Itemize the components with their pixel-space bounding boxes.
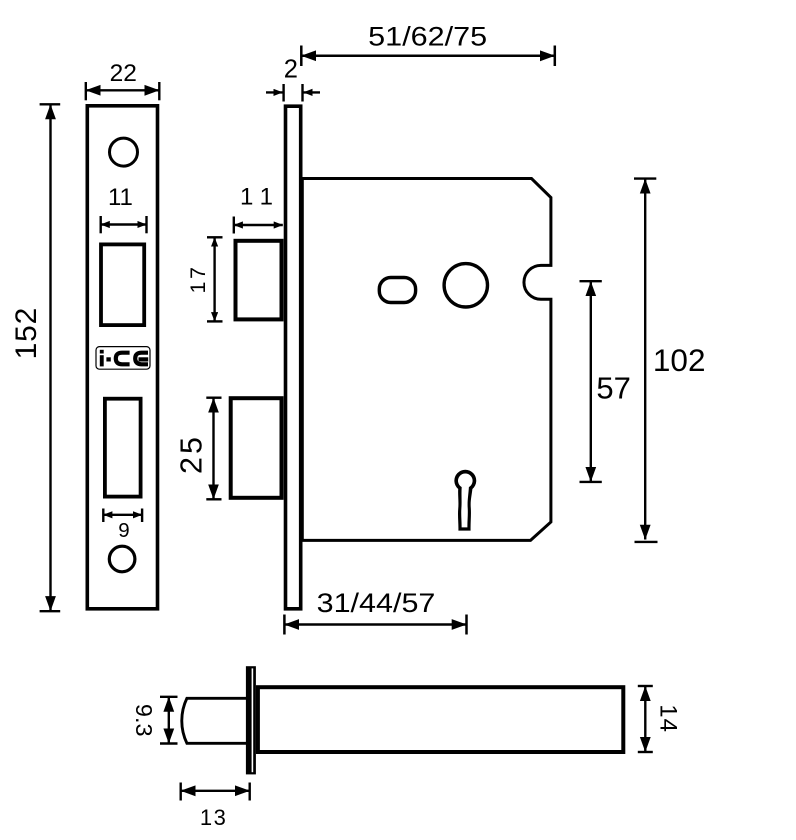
- svg-text:14: 14: [654, 704, 681, 733]
- svg-text:9: 9: [118, 519, 129, 542]
- svg-text:102: 102: [653, 342, 706, 378]
- svg-text:31/44/57: 31/44/57: [317, 588, 436, 618]
- svg-text:2: 2: [284, 56, 298, 84]
- svg-text:11: 11: [108, 184, 133, 211]
- svg-text:57: 57: [596, 371, 630, 406]
- svg-text:17: 17: [186, 265, 210, 294]
- svg-text:22: 22: [110, 60, 137, 87]
- svg-text:152: 152: [10, 307, 43, 359]
- svg-text:11: 11: [240, 183, 281, 210]
- svg-text:51/62/75: 51/62/75: [368, 22, 487, 52]
- svg-text:25: 25: [175, 434, 209, 474]
- svg-text:9.3: 9.3: [131, 704, 157, 737]
- svg-text:13: 13: [200, 805, 227, 830]
